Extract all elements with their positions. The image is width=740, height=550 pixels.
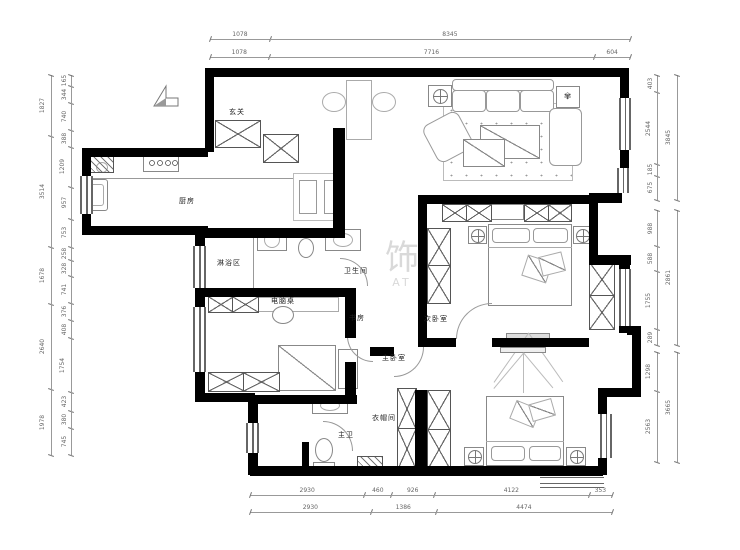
dim-right-inner-3: 1298 2563 [648,352,658,462]
window-study [193,307,206,372]
label-bedroom2: 次卧室 [424,314,448,324]
window-living-bay [617,168,629,193]
hall-table [346,80,372,140]
bed2-pillow [492,228,530,243]
label-masterbath: 主卫 [338,430,354,440]
wall-cloak-master [415,390,427,468]
coffee-table-2 [463,139,505,167]
window-living-right [619,98,631,150]
sofa-seat [452,90,486,112]
desk-chair [272,306,294,324]
label-master: 主卧室 [382,353,406,363]
dim-right-inner-1: 403 2544 185 675 [648,75,658,200]
wall-spine [333,128,345,238]
label-study: 书房 [349,313,365,323]
wall-right [620,150,629,168]
north-arrow-icon [150,84,182,116]
window-bedroom2 [619,269,631,326]
shaft-entry-2 [263,134,299,163]
stool-left [322,92,346,112]
plant-left [433,89,448,104]
label-entry: 玄关 [229,107,245,117]
study-cabinet-top [208,296,234,313]
label-kitchen: 厨房 [179,196,195,206]
toilet-1-bowl [298,238,314,258]
wall-masterbath-top [257,395,357,404]
bed2-media-unit [490,204,524,220]
label-cloakroom: 衣帽间 [372,413,396,423]
bed2-wardrobe-right [589,262,615,297]
shower-partition [253,238,254,288]
dim-right-inner-2: 988 588 1755 289 [648,210,658,345]
wall-top [205,68,629,77]
label-desk: 电脑桌 [271,296,295,306]
dim-bottom-row2: 2930 1386 4474 [250,503,612,513]
wall-hall [195,228,345,238]
master-wardrobe [427,390,451,431]
wall-kitchen-top [82,148,208,157]
plant-right: ✾ [564,92,573,102]
dim-top-row1: 1078 8345 [210,30,630,40]
dim-right-outer-1: 3845 [668,75,678,200]
wall-kitchen-bottom [82,226,208,235]
wall-right-lower [632,326,641,396]
window-master [600,414,612,458]
study-cabinet-bottom [208,372,245,392]
dim-right-outer-2: 2861 [668,210,678,345]
window-bath [193,246,206,288]
label-bathroom: 卫生间 [344,266,368,276]
window-kitchen [80,176,93,214]
bed2-wardrobe-left [427,228,451,267]
cloak-wardrobe [397,388,417,430]
dim-bottom-row1: 2930 460 926 4122 353 [250,486,612,496]
window-corridor [246,423,259,453]
stool-right [372,92,396,112]
study-bed [278,345,336,391]
shaft-entry-1 [215,120,261,148]
wall-right-top [620,68,629,98]
bedroom2-door [456,303,492,339]
label-shower: 淋浴区 [217,258,241,268]
dining-chair [299,180,317,214]
dim-right-outer-3: 3665 [668,352,678,462]
wall-entry-left [205,68,214,152]
dim-left-inner: 165 344 740 388 1209 957 753 258 328 741… [62,75,72,455]
bed2-cabinet-row [442,204,468,222]
study-desk [257,297,339,312]
dim-left-outer: 1827 3514 1678 2640 1978 [42,75,52,455]
floor-plan-canvas: 饰 AT [0,0,740,550]
chaise [549,108,582,166]
wall-living-bed2 [418,195,589,204]
master-pillow [491,446,525,461]
dim-top-row2: 1078 7716 604 [210,48,630,58]
